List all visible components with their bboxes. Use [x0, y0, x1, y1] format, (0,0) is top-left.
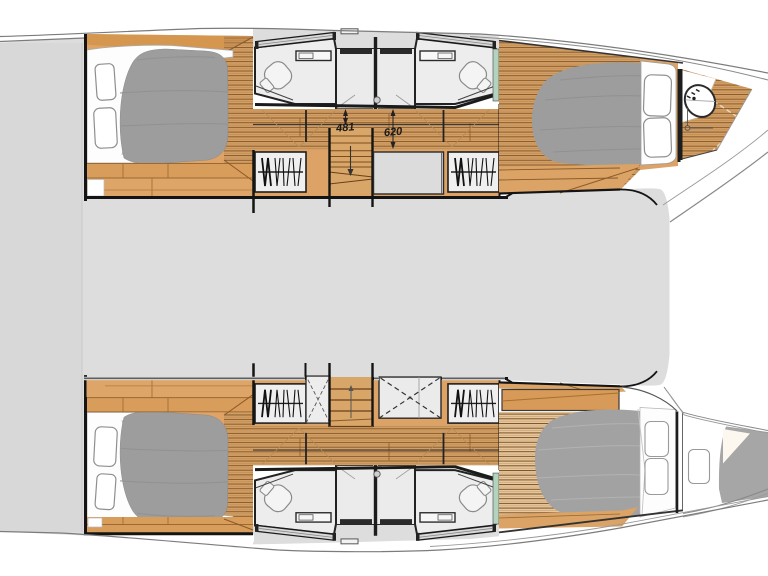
svg-text:481: 481: [335, 121, 355, 135]
svg-text:620: 620: [383, 126, 403, 140]
